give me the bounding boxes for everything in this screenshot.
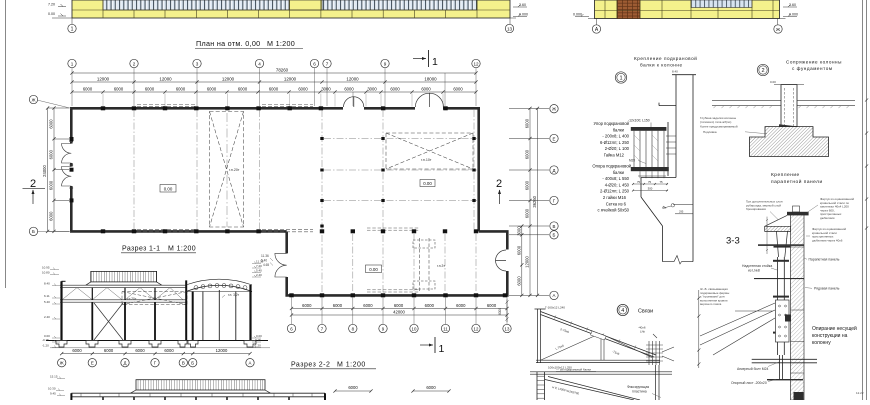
svg-text:75: 75 — [648, 180, 652, 184]
svg-text:78260: 78260 — [276, 68, 289, 73]
svg-text:3000: 3000 — [516, 226, 521, 236]
svg-text:М 1:200: М 1:200 — [337, 362, 366, 369]
svg-text:1: 1 — [439, 343, 445, 355]
svg-text:- 400х8; L 550: - 400х8; L 550 — [602, 176, 629, 181]
svg-text:2: 2 — [761, 68, 764, 74]
svg-text:3-3: 3-3 — [726, 236, 740, 247]
svg-text:0.000: 0.000 — [519, 12, 528, 16]
svg-text:6000: 6000 — [348, 385, 358, 390]
svg-text:балки к колонне: балки к колонне — [640, 63, 683, 68]
svg-text:13: 13 — [507, 26, 513, 31]
svg-text:24000: 24000 — [42, 165, 47, 177]
svg-text:6000: 6000 — [298, 87, 308, 92]
svg-text:В: В — [182, 361, 185, 366]
svg-text:12000: 12000 — [222, 77, 235, 82]
svg-text:дюбелями через 40х6: дюбелями через 40х6 — [812, 238, 843, 242]
svg-text:0.000: 0.000 — [789, 12, 798, 16]
svg-text:0.00: 0.00 — [423, 181, 432, 186]
svg-text:Г-160х12 L240: Г-160х12 L240 — [545, 306, 565, 310]
svg-text:12.22: 12.22 — [856, 391, 864, 395]
svg-text:— см подкрановой балки: — см подкрановой балки — [556, 368, 591, 372]
svg-text:Е: Е — [91, 361, 94, 366]
svg-text:12000: 12000 — [346, 77, 359, 82]
svg-text:6000: 6000 — [114, 87, 124, 92]
svg-text:М 1:200: М 1:200 — [267, 39, 295, 48]
svg-text:-1.20: -1.20 — [254, 344, 261, 348]
svg-text:В: В — [553, 224, 556, 229]
svg-text:6000: 6000 — [72, 348, 82, 353]
svg-text:6000: 6000 — [487, 303, 497, 308]
svg-text:6000: 6000 — [525, 149, 530, 159]
svg-text:10.95: 10.95 — [42, 266, 50, 270]
svg-text:6000: 6000 — [525, 180, 530, 190]
svg-text:7.20: 7.20 — [48, 3, 55, 7]
svg-text:0.00: 0.00 — [770, 80, 776, 84]
svg-text:6.11: 6.11 — [44, 294, 50, 298]
svg-text:6: 6 — [313, 61, 316, 66]
svg-text:6000: 6000 — [135, 348, 145, 353]
svg-text:12000: 12000 — [284, 77, 297, 82]
svg-text:Б: Б — [191, 361, 194, 366]
svg-text:3000: 3000 — [367, 87, 377, 92]
svg-text:2 гайки М16: 2 гайки М16 — [603, 195, 627, 200]
svg-text:Анкерный болт М24: Анкерный болт М24 — [737, 367, 769, 371]
svg-text:12000: 12000 — [525, 256, 530, 268]
svg-text:42000: 42000 — [393, 310, 405, 315]
svg-text:2.40: 2.40 — [256, 273, 262, 277]
svg-text:-12х100; L150: -12х100; L150 — [628, 119, 650, 123]
svg-text:75: 75 — [659, 180, 663, 184]
svg-text:15.15: 15.15 — [50, 375, 58, 379]
svg-text:г.п. 3,2т: г.п. 3,2т — [228, 293, 240, 297]
svg-text:10.30: 10.30 — [48, 387, 56, 391]
svg-text:6000: 6000 — [302, 303, 312, 308]
svg-text:6000: 6000 — [525, 118, 530, 128]
svg-text:Ж: Ж — [60, 361, 64, 366]
svg-text:верхнего пояса: верхнего пояса — [700, 302, 722, 306]
svg-text:Д: Д — [124, 361, 127, 366]
svg-text:Сопряжение колонны: Сопряжение колонны — [786, 60, 842, 65]
svg-text:-0.15: -0.15 — [42, 338, 49, 342]
svg-text:Е: Е — [553, 136, 556, 141]
svg-text:Связи: Связи — [638, 309, 653, 315]
svg-text:Крепление: Крепление — [771, 172, 800, 178]
svg-text:г.п.3т: г.п.3т — [437, 264, 445, 268]
svg-text:11: 11 — [443, 326, 448, 331]
svg-text:6000: 6000 — [363, 303, 373, 308]
svg-text:4: 4 — [258, 61, 261, 66]
svg-text:План на отм. 0,00: План на отм. 0,00 — [196, 39, 260, 48]
svg-text:12: 12 — [473, 61, 479, 66]
svg-text:4.65: 4.65 — [263, 263, 269, 267]
svg-text:10: 10 — [412, 326, 417, 331]
svg-text:балки: балки — [613, 127, 625, 132]
svg-text:2.40: 2.40 — [44, 315, 50, 319]
svg-text:36260: 36260 — [532, 195, 537, 207]
svg-text:6000: 6000 — [83, 87, 93, 92]
svg-text:колонну: колонну — [812, 340, 831, 346]
svg-text:7: 7 — [326, 61, 329, 66]
svg-text:8.40: 8.40 — [44, 282, 50, 286]
svg-text:6000: 6000 — [269, 87, 279, 92]
svg-text:Подливка: Подливка — [703, 130, 717, 134]
svg-text:1: 1 — [432, 56, 438, 68]
svg-text:6000: 6000 — [516, 276, 521, 286]
svg-text:12000: 12000 — [97, 77, 110, 82]
svg-text:0.00: 0.00 — [164, 186, 173, 191]
svg-text:0.00: 0.00 — [369, 267, 378, 272]
svg-text:Б: Б — [32, 229, 35, 234]
svg-text:более предусматриваемой: более предусматриваемой — [700, 124, 738, 128]
svg-text:с ячейкой 50х50: с ячейкой 50х50 — [598, 208, 630, 213]
svg-text:10.80: 10.80 — [42, 271, 50, 275]
svg-text:13: 13 — [505, 326, 510, 331]
svg-text:2: 2 — [496, 178, 502, 190]
svg-text:6-Ø12лп; L 250: 6-Ø12лп; L 250 — [600, 140, 630, 145]
svg-text:Сетка из 6: Сетка из 6 — [606, 201, 627, 206]
svg-text:11.36: 11.36 — [261, 254, 269, 258]
svg-text:6000: 6000 — [421, 87, 431, 92]
svg-text:6000: 6000 — [49, 119, 54, 129]
svg-text:-0.15: -0.15 — [254, 338, 261, 342]
svg-text:Б: Б — [553, 233, 556, 238]
svg-text:- 200х8; L 400: - 200х8; L 400 — [602, 134, 629, 139]
svg-text:18000: 18000 — [424, 77, 437, 82]
svg-text:Ж: Ж — [31, 97, 35, 102]
svg-text:0.000: 0.000 — [573, 13, 582, 17]
svg-text:4: 4 — [621, 308, 624, 314]
svg-text:Фиксирующая: Фиксирующая — [627, 385, 649, 389]
svg-text:6000: 6000 — [394, 303, 404, 308]
svg-text:Опора подкрановой: Опора подкрановой — [592, 164, 631, 169]
svg-text:11.38: 11.38 — [256, 260, 264, 264]
svg-text:2-Ø20; L 100: 2-Ø20; L 100 — [605, 146, 630, 151]
svg-text:6000: 6000 — [49, 149, 54, 159]
svg-text:3.60: 3.60 — [519, 3, 526, 7]
svg-text:Разрез 1-1: Разрез 1-1 — [122, 246, 160, 253]
svg-text:дюбелями: дюбелями — [820, 216, 835, 220]
svg-text:6000: 6000 — [104, 348, 114, 353]
svg-text:7.20: 7.20 — [256, 264, 262, 268]
svg-text:Д: Д — [553, 168, 556, 173]
svg-text:6000: 6000 — [525, 208, 530, 218]
svg-text:2: 2 — [133, 61, 136, 66]
svg-text:пластина: пластина — [632, 390, 647, 394]
svg-text:М 1:200: М 1:200 — [168, 246, 196, 253]
svg-text:Гайка М12: Гайка М12 — [604, 153, 625, 158]
svg-text:г.п.10т: г.п.10т — [421, 158, 432, 162]
svg-text:6000: 6000 — [238, 87, 248, 92]
svg-text:3: 3 — [196, 61, 199, 66]
svg-text:бронирования: бронирования — [746, 207, 766, 211]
svg-text:75: 75 — [637, 180, 641, 184]
svg-text:295: 295 — [679, 210, 684, 214]
svg-text:6000: 6000 — [344, 87, 354, 92]
svg-text:6000: 6000 — [164, 348, 174, 353]
svg-text:8.40: 8.40 — [672, 70, 678, 74]
svg-text:А: А — [249, 361, 252, 366]
svg-text:9: 9 — [384, 61, 387, 66]
svg-text:12000: 12000 — [159, 77, 172, 82]
svg-text:Парапетная панель: Парапетная панель — [809, 258, 840, 262]
svg-text:9.45: 9.45 — [50, 392, 56, 396]
svg-text:Надстенная стойка: Надстенная стойка — [742, 264, 772, 268]
svg-text:6000: 6000 — [49, 180, 54, 190]
svg-text:Ж: Ж — [552, 107, 556, 112]
svg-text:0.00: 0.00 — [48, 12, 55, 16]
svg-text:2-Ø12лп; L 250: 2-Ø12лп; L 250 — [600, 189, 630, 194]
svg-text:5.40: 5.40 — [256, 269, 262, 273]
svg-text:6000: 6000 — [49, 211, 54, 221]
svg-text:12: 12 — [474, 326, 479, 331]
svg-text:парапетной панели: парапетной панели — [771, 178, 823, 185]
svg-text:г.п.20т: г.п.20т — [127, 297, 137, 301]
svg-text:6000: 6000 — [425, 303, 435, 308]
svg-text:6000: 6000 — [426, 385, 436, 390]
svg-text:Разрез 2-2: Разрез 2-2 — [291, 362, 330, 369]
svg-text:г.п.20т: г.п.20т — [229, 168, 240, 172]
svg-text:Рядовая панель: Рядовая панель — [814, 287, 840, 291]
svg-text:А: А — [553, 293, 556, 298]
svg-text:6000: 6000 — [498, 308, 502, 315]
svg-text:1: 1 — [71, 61, 74, 66]
svg-text:6000: 6000 — [390, 87, 400, 92]
svg-text:балки: балки — [613, 170, 625, 175]
svg-text:из L№8: из L№8 — [748, 269, 760, 273]
svg-text:с фундаментом: с фундаментом — [792, 66, 833, 71]
svg-text:300: 300 — [648, 187, 653, 191]
svg-text:L№: L№ — [640, 330, 646, 334]
svg-text:6000: 6000 — [516, 245, 521, 255]
svg-text:6000: 6000 — [453, 87, 463, 92]
svg-text:6000: 6000 — [207, 87, 217, 92]
svg-text:6000: 6000 — [176, 87, 186, 92]
svg-text:4-Ø20; L 450: 4-Ø20; L 450 — [605, 182, 630, 187]
svg-text:Упор подкрановой: Упор подкрановой — [594, 121, 630, 126]
svg-text:Крепление подкрановой: Крепление подкрановой — [634, 55, 697, 61]
svg-text:5.40: 5.40 — [44, 300, 50, 304]
svg-text:1: 1 — [619, 76, 622, 82]
svg-text:6000: 6000 — [456, 303, 466, 308]
svg-text:1: 1 — [71, 26, 74, 32]
svg-text:12000: 12000 — [216, 348, 228, 353]
svg-text:Опирание несущей: Опирание несущей — [812, 325, 857, 332]
svg-text:-1.20: -1.20 — [42, 344, 49, 348]
svg-text:3000: 3000 — [321, 87, 331, 92]
svg-text:конструкции на: конструкции на — [812, 333, 848, 339]
svg-text:6000: 6000 — [333, 303, 343, 308]
svg-text:М20: М20 — [629, 159, 635, 163]
svg-text:Опорный лист -200х20: Опорный лист -200х20 — [731, 381, 767, 385]
svg-text:6000: 6000 — [145, 87, 155, 92]
svg-text:3.60: 3.60 — [789, 3, 796, 7]
